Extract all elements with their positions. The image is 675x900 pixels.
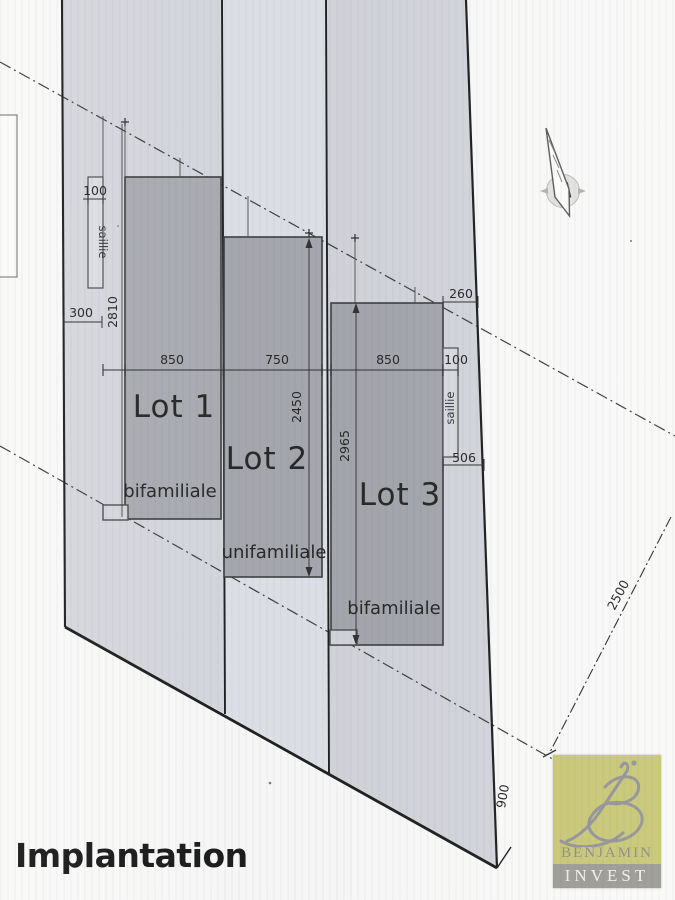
dim-width-lot1: 850 xyxy=(160,352,184,367)
notch-lot1 xyxy=(103,505,128,520)
dim-depth-lot1: 2810 xyxy=(105,296,120,328)
logo-brand-text: BENJAMIN xyxy=(553,845,661,862)
dim-depth-lot2: 2450 xyxy=(289,391,304,423)
dim-width-lot2: 750 xyxy=(265,352,289,367)
logo-band: INVEST xyxy=(553,864,661,888)
dim-depth-lot3: 2965 xyxy=(337,430,352,462)
boundary-corner-tick xyxy=(497,847,511,868)
dim-saillie-width-lot3: 100 xyxy=(444,352,468,367)
logo-division-text: INVEST xyxy=(565,866,649,886)
benjamin-invest-logo: BENJAMIN INVEST xyxy=(553,755,661,888)
north-compass: N xyxy=(540,128,586,216)
compass-west-tick xyxy=(540,188,548,194)
jb-monogram-icon xyxy=(553,755,661,847)
lot3-type: bifamiliale xyxy=(347,598,440,619)
lot2-name: Lot 2 xyxy=(226,441,308,477)
dim-saillie-width-lot1: 100 xyxy=(83,183,107,198)
dim-line-east2500 xyxy=(549,517,671,754)
lot1-type: bifamiliale xyxy=(123,481,216,502)
lot2-type: unifamiliale xyxy=(222,542,327,563)
neighbor-building-outline xyxy=(0,115,17,277)
compass-east-tick xyxy=(578,188,586,194)
page-title: Implantation xyxy=(15,836,248,875)
dim-width-lot3: 850 xyxy=(376,352,400,367)
notch-lot3 xyxy=(330,630,357,645)
dim-offset506-lot3: 506 xyxy=(452,450,476,465)
dim-east-boundary: 2500 xyxy=(604,577,632,612)
dim-offset300-lot1: 300 xyxy=(69,305,93,320)
saillie-label-lot1: saillie xyxy=(96,226,110,259)
saillie-label-lot3: saillie xyxy=(443,392,457,425)
building-lot2 xyxy=(224,237,322,577)
lot1-name: Lot 1 xyxy=(133,389,215,425)
dim-south-boundary: 900 xyxy=(493,783,512,809)
dim-offset260-lot3: 260 xyxy=(449,286,473,301)
lot3-name: Lot 3 xyxy=(359,477,441,513)
building-lot1 xyxy=(125,177,221,519)
